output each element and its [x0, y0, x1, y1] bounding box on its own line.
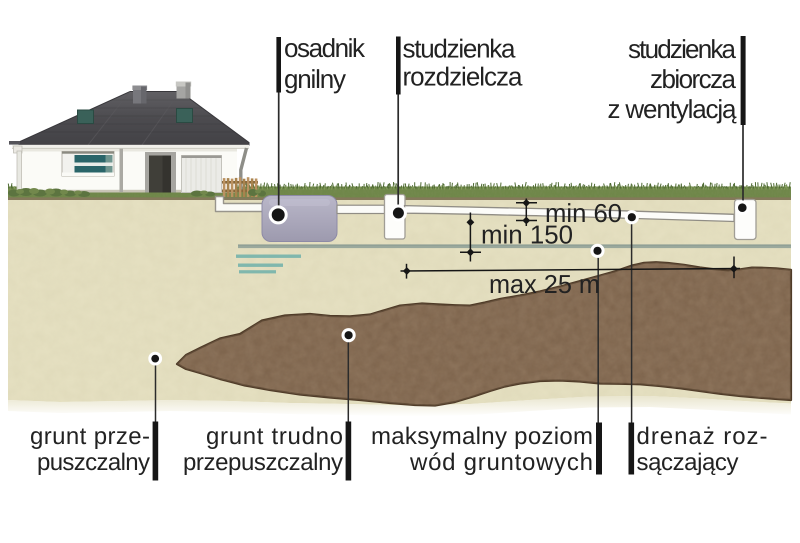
svg-text:osadnik: osadnik: [284, 33, 366, 63]
svg-text:max 25 m: max 25 m: [489, 269, 600, 299]
svg-text:grunt trudno: grunt trudno: [206, 423, 343, 450]
svg-text:gnilny: gnilny: [284, 64, 346, 94]
svg-text:zbiorcza: zbiorcza: [650, 64, 737, 94]
svg-text:maksymalny poziom: maksymalny poziom: [371, 423, 593, 450]
svg-text:rozdzielcza: rozdzielcza: [403, 62, 524, 92]
svg-text:puszczalny: puszczalny: [37, 449, 150, 476]
svg-text:grunt prze-: grunt prze-: [30, 423, 150, 450]
svg-text:studzienka: studzienka: [628, 34, 737, 64]
svg-text:przepuszczalny: przepuszczalny: [183, 449, 343, 476]
svg-text:min 150: min 150: [481, 220, 573, 250]
svg-text:drenaż roz-: drenaż roz-: [637, 423, 768, 450]
svg-text:studzienka: studzienka: [403, 34, 517, 64]
svg-text:wód gruntowych: wód gruntowych: [409, 449, 593, 476]
svg-text:z wentylacją: z wentylacją: [608, 94, 738, 124]
svg-text:sączający: sączający: [637, 449, 739, 476]
